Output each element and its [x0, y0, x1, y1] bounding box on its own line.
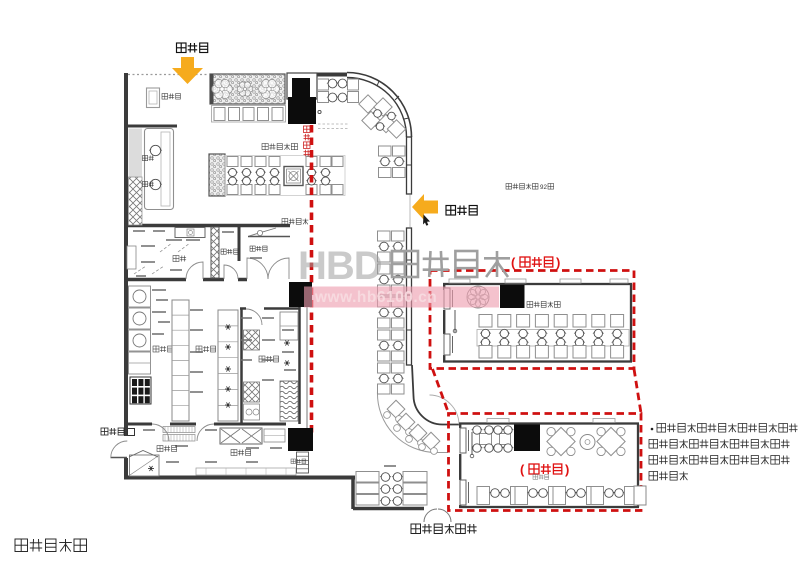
svg-text:): )	[565, 462, 569, 477]
svg-text:www.hb6100.cn: www.hb6100.cn	[314, 289, 437, 306]
svg-text:(: (	[520, 462, 525, 477]
svg-text:92: 92	[540, 184, 547, 191]
svg-text:HBD: HBD	[298, 244, 382, 288]
svg-text:(: (	[511, 255, 516, 270]
svg-text:): )	[556, 255, 560, 270]
